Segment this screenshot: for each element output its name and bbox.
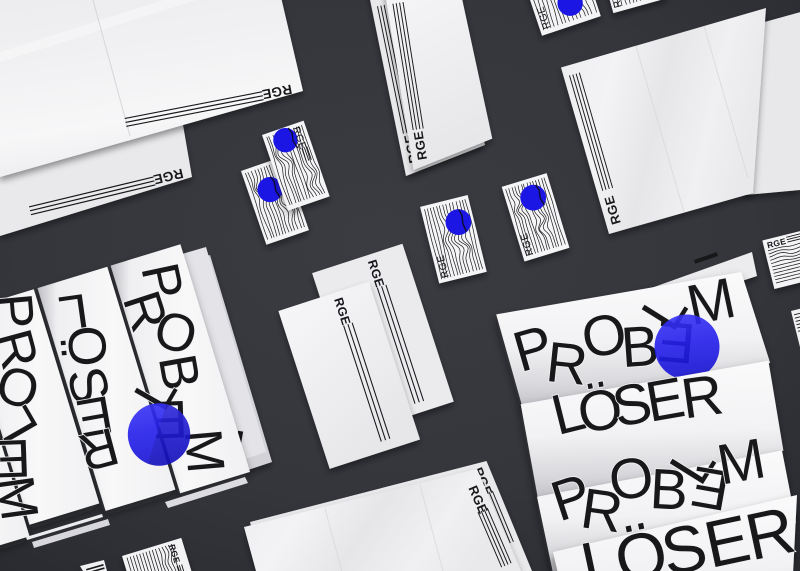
svg-text:R: R	[677, 362, 727, 431]
svg-text:M: M	[0, 472, 49, 524]
